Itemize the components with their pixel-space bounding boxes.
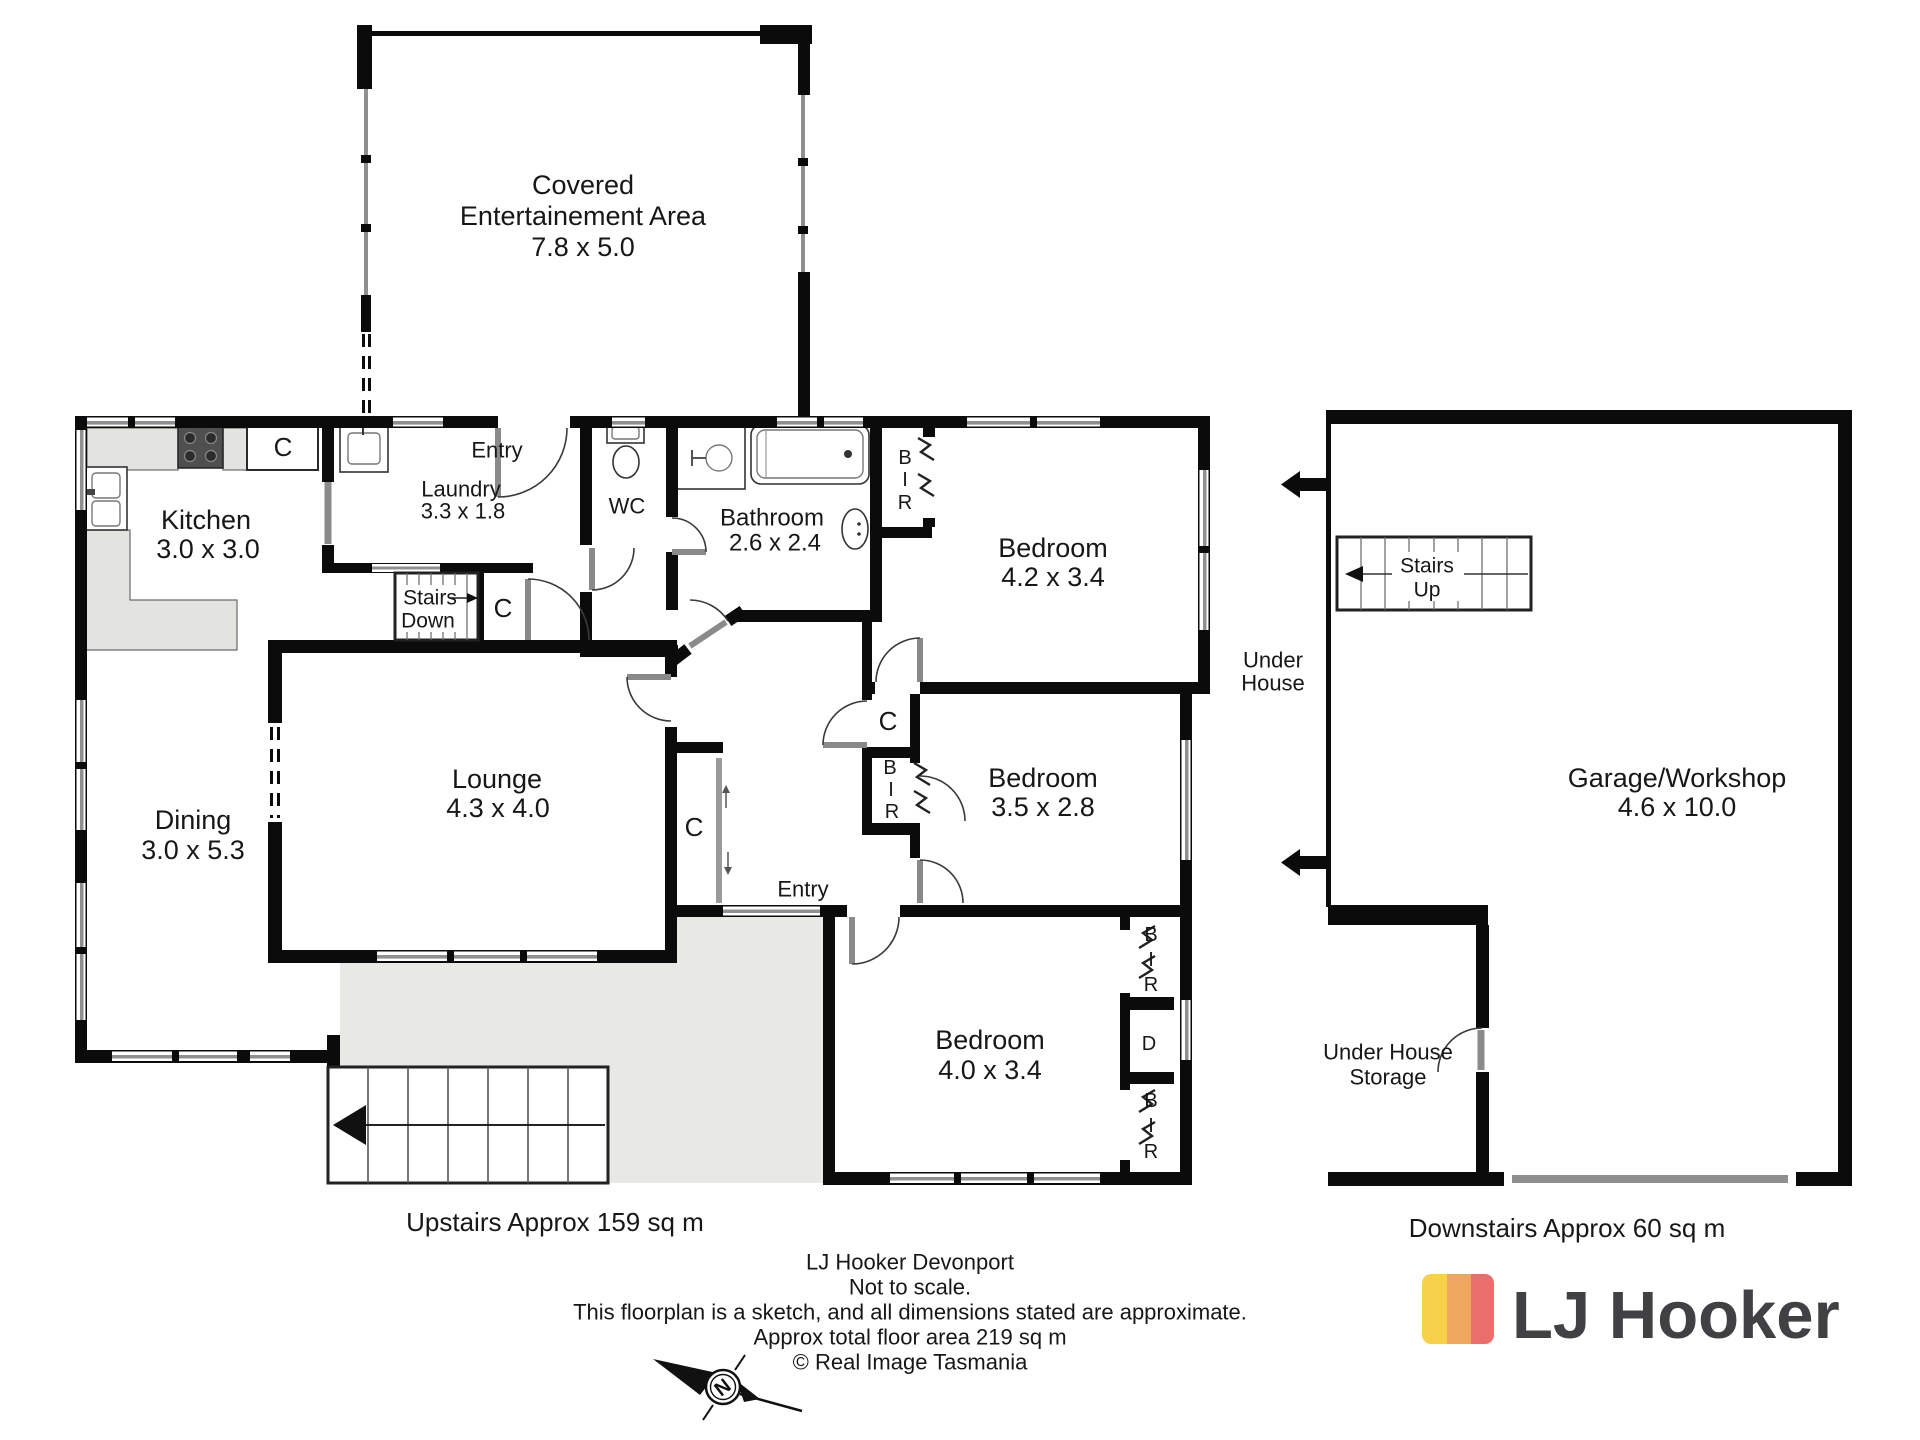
ljhooker-logo: LJ Hooker: [1422, 1274, 1840, 1353]
compass-icon: N: [653, 1355, 802, 1420]
bir3b-r: R: [1144, 1141, 1158, 1163]
window-kitchen-top: [87, 416, 175, 428]
bir1-r: R: [898, 492, 912, 514]
bir2-b: B: [883, 757, 896, 779]
hall-closet-slider: [716, 758, 732, 903]
bathroom-dims: 2.6 x 2.4: [729, 530, 821, 557]
dining-dims: 3.0 x 5.3: [141, 835, 245, 865]
wc-door: [592, 548, 634, 590]
window-bathroom-top: [777, 416, 863, 428]
window-dining-left-3: [75, 883, 87, 1020]
stairs-down-label-1: Stairs: [403, 587, 457, 610]
footer-line-3: This floorplan is a sketch, and all dime…: [573, 1300, 1247, 1325]
kitchen-sink-icon: [85, 467, 127, 530]
stairs-up-label-2: Up: [1414, 579, 1441, 602]
lounge-door: [627, 677, 671, 721]
bedroom1-door: [876, 638, 920, 682]
bir3b-b: B: [1144, 1090, 1157, 1112]
bedroom1-dims: 4.2 x 3.4: [1001, 562, 1105, 592]
floorplan-page: Covered Entertainement Area 7.8 x 5.0 Ki…: [0, 0, 1920, 1440]
arrow-left-bottom: [1281, 849, 1326, 876]
bathroom-label: Bathroom: [720, 505, 824, 532]
window-bedroom3-right: [1182, 1000, 1191, 1060]
bir3a-b: B: [1144, 924, 1157, 946]
window-dining-bottom-2: [250, 1052, 290, 1062]
bir2-r: R: [885, 801, 899, 823]
cupboard-stairs: C: [494, 593, 513, 623]
window-laundry-top: [393, 418, 443, 427]
logo-stripe-orange: [1447, 1274, 1471, 1344]
window-bedroom1-top: [967, 416, 1100, 428]
window-dining-left-1: [77, 430, 86, 510]
bedroom1-label: Bedroom: [998, 533, 1108, 563]
logo-text: LJ Hooker: [1512, 1278, 1840, 1353]
bedroom2-label: Bedroom: [988, 763, 1098, 793]
entry-glass-door: [723, 907, 820, 916]
laundry-dims: 3.3 x 1.8: [421, 499, 505, 524]
stove-icon: [178, 426, 223, 468]
garage-dims: 4.6 x 10.0: [1618, 792, 1737, 822]
vanity-icon: [676, 423, 745, 489]
bedroom2-door: [920, 860, 963, 903]
dining-label: Dining: [155, 805, 232, 835]
kitchen-label: Kitchen: [161, 505, 251, 535]
storage-label-2: Storage: [1349, 1065, 1426, 1090]
basin-icon: [842, 509, 868, 549]
floorplan-canvas: Covered Entertainement Area 7.8 x 5.0 Ki…: [0, 0, 1920, 1440]
hall-door: [672, 518, 706, 552]
storage-label-1: Under House: [1323, 1040, 1453, 1065]
bir3b-i: I: [1148, 1115, 1154, 1137]
arrow-left-top: [1281, 471, 1326, 498]
stairs-cupboard-door: [528, 579, 589, 640]
garage-label: Garage/Workshop: [1568, 763, 1787, 793]
bir1-i: I: [902, 469, 908, 491]
bathtub-icon: [751, 425, 869, 484]
cupboard-kitchen: C: [274, 432, 293, 462]
cupboard-hall: C: [685, 812, 704, 842]
entry-mid-label: Entry: [777, 877, 828, 902]
under-house-label-2: House: [1241, 671, 1305, 696]
bedroom2-dims: 3.5 x 2.8: [991, 792, 1095, 822]
mid-cupboard-door: [823, 701, 867, 745]
under-house-label-1: Under: [1243, 648, 1303, 673]
bir1-b: B: [898, 447, 911, 469]
bir2-i: I: [888, 779, 894, 801]
logo-stripe-red: [1471, 1274, 1494, 1344]
labels: Covered Entertainement Area 7.8 x 5.0 Ki…: [141, 170, 1786, 1375]
lounge-label: Lounge: [452, 764, 542, 794]
wc-label: WC: [609, 494, 646, 519]
footer-line-5: © Real Image Tasmania: [793, 1350, 1028, 1375]
lounge-dims: 4.3 x 4.0: [446, 793, 550, 823]
kitchen-dims: 3.0 x 3.0: [156, 534, 260, 564]
stairs-up-label-1: Stairs: [1400, 555, 1454, 578]
logo-stripe-yellow: [1422, 1274, 1447, 1344]
toilet-icon: [607, 423, 644, 478]
bedroom3-dims: 4.0 x 3.4: [938, 1055, 1042, 1085]
entertainment-label-1: Covered: [532, 170, 634, 200]
bir3a-i: I: [1148, 949, 1154, 971]
window-dining-left-2: [75, 700, 87, 830]
laundry-trough-icon: [340, 424, 388, 472]
entertainment-dims: 7.8 x 5.0: [531, 232, 635, 262]
bir3a-r: R: [1144, 974, 1158, 996]
entertainment-label-2: Entertainement Area: [460, 201, 707, 231]
window-bedroom1-right: [1198, 470, 1210, 630]
laundry-door: [325, 482, 332, 544]
bedroom3-label: Bedroom: [935, 1025, 1045, 1055]
bathroom-door: [671, 600, 743, 662]
upstairs-area-label: Upstairs Approx 159 sq m: [406, 1207, 704, 1237]
cupboard-mid: C: [879, 706, 898, 736]
window-gap-above-stairs: [372, 564, 440, 572]
downstairs-area-label: Downstairs Approx 60 sq m: [1409, 1213, 1725, 1243]
footer-line-4: Approx total floor area 219 sq m: [753, 1325, 1066, 1350]
stairs-down-label-2: Down: [401, 610, 455, 633]
deck-stairs: [328, 1067, 608, 1183]
entry-top-label: Entry: [471, 438, 522, 463]
window-bedroom2-right: [1182, 740, 1191, 860]
dresser-d: D: [1142, 1033, 1156, 1055]
footer-line-1: LJ Hooker Devonport: [806, 1250, 1014, 1275]
window-wc-top: [612, 418, 645, 427]
footer-line-2: Not to scale.: [849, 1275, 971, 1300]
bedroom3-door: [852, 917, 899, 964]
